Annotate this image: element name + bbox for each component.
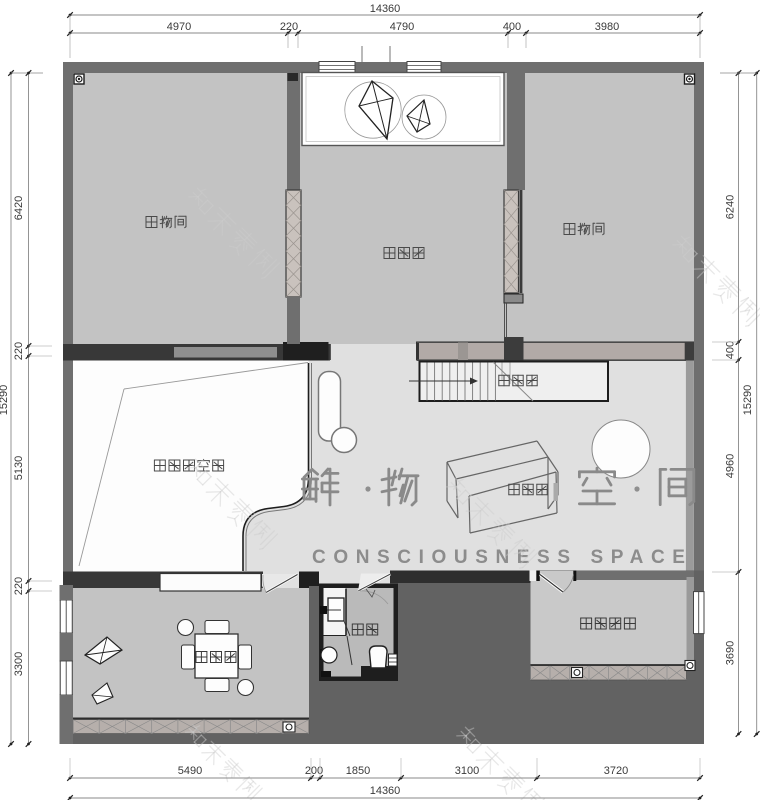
svg-text:400: 400 <box>725 341 737 359</box>
svg-text:CONSCIOUSNESS SPACE: CONSCIOUSNESS SPACE <box>312 547 693 568</box>
svg-text:3300: 3300 <box>13 652 25 676</box>
svg-text:6240: 6240 <box>725 195 737 219</box>
svg-text:4970: 4970 <box>167 21 191 33</box>
svg-text:220: 220 <box>13 342 25 360</box>
svg-text:220: 220 <box>280 21 298 33</box>
svg-text:15290: 15290 <box>742 385 754 416</box>
svg-text:5130: 5130 <box>13 456 25 480</box>
svg-text:1850: 1850 <box>346 765 370 777</box>
svg-text:400: 400 <box>503 21 521 33</box>
svg-text:4960: 4960 <box>725 454 737 478</box>
svg-text:15290: 15290 <box>0 385 10 416</box>
svg-text:14360: 14360 <box>370 3 401 15</box>
svg-text:3100: 3100 <box>455 765 479 777</box>
svg-text:200: 200 <box>305 765 323 777</box>
svg-text:4790: 4790 <box>390 21 414 33</box>
svg-text:3980: 3980 <box>595 21 619 33</box>
svg-text:220: 220 <box>13 577 25 595</box>
svg-text:6420: 6420 <box>13 196 25 220</box>
svg-text:5490: 5490 <box>178 765 202 777</box>
svg-text:3690: 3690 <box>725 641 737 665</box>
svg-text:3720: 3720 <box>604 765 628 777</box>
svg-text:14360: 14360 <box>370 785 401 797</box>
